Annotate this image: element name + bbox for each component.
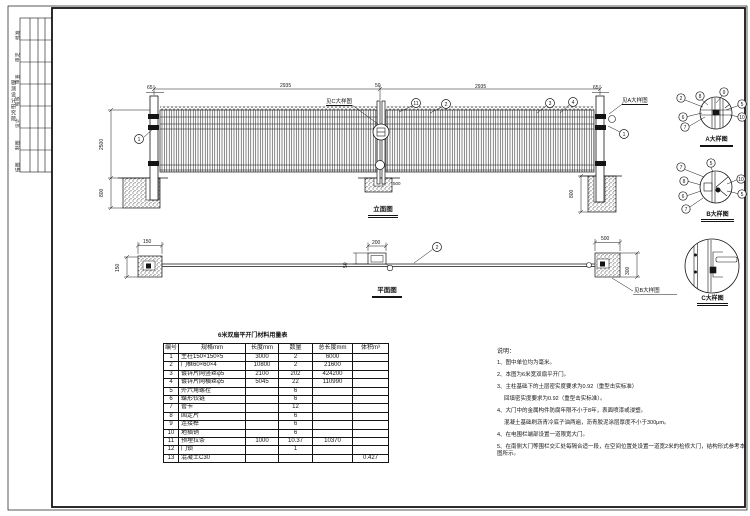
table-cell: 6 <box>279 429 313 437</box>
callout: 6 <box>679 113 687 121</box>
callout: 2 <box>442 100 451 109</box>
svg-text:8: 8 <box>699 94 702 100</box>
table-cell <box>246 429 279 437</box>
table-cell: 10800 <box>246 362 279 370</box>
svg-text:3: 3 <box>549 101 552 107</box>
detail-b-title: B大样图 <box>701 209 734 221</box>
table-cell: 6000 <box>313 354 353 362</box>
svg-text:5: 5 <box>741 102 744 108</box>
svg-text:7: 7 <box>685 207 688 213</box>
titleblock-row-label: 描图 <box>15 162 21 172</box>
titleblock-row-label: 审查 <box>15 74 21 84</box>
see-detail-a-label: 见A大样图 <box>622 96 648 106</box>
notes-block: 说明： 1、图中单位均为毫米。2、本图为6米宽双扇平开门。3、主柱基础下的土层密… <box>497 346 749 463</box>
table-row: 12门锁1 <box>164 446 389 454</box>
note-line: 3、主柱基础下的土层密实度要求为0.92（重型击实标准） <box>497 384 749 391</box>
table-cell <box>313 387 353 395</box>
table-row: 11预埋拉条100010.3710370 <box>164 438 389 446</box>
material-table-title: 6米双扇平开门材料用量表 <box>218 330 287 339</box>
detail-a <box>685 96 740 129</box>
table-cell <box>353 379 389 387</box>
table-row: 1主柱150×150×5300026000 <box>164 354 389 362</box>
table-cell: 8 <box>164 412 179 420</box>
table-cell: 2100 <box>246 370 279 378</box>
table-cell <box>353 412 389 420</box>
table-cell <box>353 362 389 370</box>
table-cell <box>246 404 279 412</box>
table-cell <box>246 446 279 454</box>
table-row: 4镀锌片网横丝φ5504522110990 <box>164 379 389 387</box>
table-cell: 1000 <box>246 438 279 446</box>
table-cell: 混凝土C30 <box>179 454 246 462</box>
table-header-cell: 总长度mm <box>313 344 353 354</box>
svg-text:6: 6 <box>682 194 685 200</box>
detail-c <box>685 239 739 293</box>
mesh-leaf-right <box>386 110 594 172</box>
table-cell <box>353 446 389 454</box>
table-cell: 202 <box>279 370 313 378</box>
callout: 10 <box>738 113 746 121</box>
notes-list: 1、图中单位均为毫米。2、本图为6米宽双扇平开门。3、主柱基础下的土层密实度要求… <box>497 360 749 458</box>
table-cell: 424200 <box>313 370 353 378</box>
drawing-sheet: 1 11 2 3 4 1 2 2 8 9 5 10 6 7 7 5 10 8 6… <box>0 0 750 516</box>
table-cell: 12 <box>164 446 179 454</box>
table-cell <box>353 404 389 412</box>
table-header-cell: 数量 <box>279 344 313 354</box>
svg-text:8: 8 <box>683 179 686 185</box>
callout: 3 <box>546 99 555 108</box>
table-cell: 地插销 <box>179 429 246 437</box>
callout: 7 <box>677 163 685 171</box>
table-header-cell: 规格mm <box>179 344 246 354</box>
titleblock-row-label: 制图 <box>15 140 21 150</box>
mesh-spikes-left <box>160 106 377 110</box>
table-cell <box>313 396 353 404</box>
table-cell: 预埋拉条 <box>179 438 246 446</box>
dim-top-left: 2935 <box>280 83 291 89</box>
table-row: 8固定片6 <box>164 412 389 420</box>
table-row: 3镀锌片网竖丝φ52100202424200 <box>164 370 389 378</box>
table-cell: 6 <box>279 412 313 420</box>
dim-plan-lock-w: 200 <box>372 240 380 246</box>
callout: 7 <box>682 205 690 213</box>
dim-gate-height: 2500 <box>99 139 105 150</box>
note-line: 混凝土基础刷沥青冷底子油两遍，沥青胶泥涂层厚度不小于300μm。 <box>504 420 749 427</box>
table-cell <box>313 429 353 437</box>
table-cell: 6 <box>279 387 313 395</box>
table-cell: 2 <box>279 354 313 362</box>
table-cell <box>353 438 389 446</box>
table-cell: 蝶形铰链 <box>179 396 246 404</box>
dim-plan-post-right-w: 500 <box>601 236 609 242</box>
table-cell: 9 <box>164 421 179 429</box>
callout: 8 <box>680 177 688 185</box>
callout: 5 <box>707 159 715 167</box>
table-cell: 镀锌片网横丝φ5 <box>179 379 246 387</box>
svg-text:7: 7 <box>680 165 683 171</box>
svg-text:9: 9 <box>723 90 726 96</box>
callout: 6 <box>679 192 687 200</box>
titleblock-row-label: 审定 <box>15 52 21 62</box>
dim-plan-post-left-w: 150 <box>143 239 151 245</box>
table-cell: 11 <box>164 438 179 446</box>
table-row: 5外六角螺栓6 <box>164 387 389 395</box>
table-cell: 12 <box>279 404 313 412</box>
table-cell: 110990 <box>313 379 353 387</box>
notes-title: 说明： <box>497 346 749 355</box>
callout: 11 <box>412 99 421 108</box>
elevation-title: 立面图 <box>368 203 398 216</box>
callout: 9 <box>720 88 728 96</box>
plan-title: 平面图 <box>372 284 402 297</box>
see-detail-c-label: 见C大样图 <box>326 97 352 107</box>
dim-post-left: 65 <box>147 85 153 91</box>
svg-text:7: 7 <box>684 125 687 131</box>
svg-text:10: 10 <box>739 115 745 121</box>
table-cell <box>353 421 389 429</box>
table-row: 7管卡12 <box>164 404 389 412</box>
material-table: 编号规格mm长度mm数量总长度mm体积m³ 1主柱150×150×5300026… <box>163 343 389 463</box>
svg-text:2: 2 <box>436 245 439 251</box>
dim-foundation-depth: 800 <box>99 189 105 197</box>
gate-post-left <box>150 96 158 200</box>
table-row: 6蝶形铰链6 <box>164 396 389 404</box>
detail-b <box>685 168 738 208</box>
table-cell: 镀锌片网竖丝φ5 <box>179 370 246 378</box>
dim-plan-post-right-d: 300 <box>625 267 631 275</box>
dim-center-foundation: 500 <box>393 181 401 186</box>
table-cell: 4 <box>164 379 179 387</box>
svg-text:1: 1 <box>138 137 141 143</box>
table-cell <box>353 429 389 437</box>
table-cell <box>313 404 353 412</box>
plan-lock <box>368 253 393 271</box>
table-cell: 5045 <box>246 379 279 387</box>
svg-text:2: 2 <box>680 96 683 102</box>
table-cell: 10370 <box>313 438 353 446</box>
table-cell: 3000 <box>246 354 279 362</box>
svg-text:6: 6 <box>682 115 685 121</box>
titleblock-grid <box>20 18 52 172</box>
table-cell <box>313 421 353 429</box>
note-line: 5、在南侧大门等围栏交汇处每隔合适一段，在空间位置处设置一道宽2米的检修大门，结… <box>497 444 749 458</box>
table-row: 13混凝土C300.427 <box>164 454 389 462</box>
callout: 1 <box>135 135 144 144</box>
table-cell <box>246 387 279 395</box>
svg-text:10: 10 <box>738 177 744 183</box>
callout: 8 <box>696 92 704 100</box>
detail-a-title: A大样图 <box>700 134 733 146</box>
svg-text:2: 2 <box>445 102 448 108</box>
note-line: 回填密实度要求为0.92（重型击实标准）。 <box>504 396 749 403</box>
table-cell: 管卡 <box>179 404 246 412</box>
material-table-body: 1主柱150×150×53000260002门框60×60×4108002216… <box>164 354 389 463</box>
titleblock-row-label: 批准 <box>15 30 21 40</box>
table-cell: 连接榫 <box>179 421 246 429</box>
callout: 10 <box>737 175 745 183</box>
dim-foundation-depth-right: 800 <box>569 190 575 198</box>
svg-text:1: 1 <box>623 132 626 138</box>
table-cell <box>353 354 389 362</box>
table-header-cell: 长度mm <box>246 344 279 354</box>
table-cell: 13 <box>164 454 179 462</box>
table-cell <box>246 396 279 404</box>
callout: 4 <box>569 98 578 107</box>
table-cell: 1 <box>164 354 179 362</box>
table-cell: 3 <box>164 370 179 378</box>
table-cell <box>246 454 279 462</box>
table-cell: 6 <box>279 421 313 429</box>
table-cell: 0.427 <box>353 454 389 462</box>
table-cell: 6 <box>279 396 313 404</box>
callout: 5 <box>738 190 746 198</box>
table-cell <box>353 370 389 378</box>
dim-center-gap: 50 <box>375 83 381 89</box>
table-cell <box>279 454 313 462</box>
table-cell: 1 <box>279 446 313 454</box>
callout: 1 <box>620 130 629 139</box>
table-cell <box>353 387 389 395</box>
table-cell <box>313 454 353 462</box>
dim-plan-post-left-d: 150 <box>115 264 121 272</box>
titleblock-row-label: 设计 <box>15 118 21 128</box>
note-line: 4、大门中的金属构件防腐年限不小于8年，表面喷漆或浸塑。 <box>497 408 749 415</box>
table-header-cell: 编号 <box>164 344 179 354</box>
table-cell <box>246 421 279 429</box>
table-cell <box>313 446 353 454</box>
callout: 2 <box>677 94 685 102</box>
callout: 5 <box>738 100 746 108</box>
table-cell: 外六角螺栓 <box>179 387 246 395</box>
dim-post-right: 65 <box>593 85 599 91</box>
table-cell: 5 <box>164 387 179 395</box>
table-cell: 6 <box>164 396 179 404</box>
table-cell <box>353 396 389 404</box>
note-line: 1、图中单位均为毫米。 <box>497 360 749 367</box>
table-cell: 10.37 <box>279 438 313 446</box>
table-row: 9连接榫6 <box>164 421 389 429</box>
plan-gate-line <box>162 264 595 267</box>
table-cell: 2 <box>164 362 179 370</box>
table-cell <box>313 412 353 420</box>
table-cell: 门锁 <box>179 446 246 454</box>
table-cell: 2 <box>279 362 313 370</box>
svg-text:4: 4 <box>572 100 575 106</box>
table-cell: 主柱150×150×5 <box>179 354 246 362</box>
table-row: 10地插销6 <box>164 429 389 437</box>
callout: 7 <box>681 123 689 131</box>
table-cell: 7 <box>164 404 179 412</box>
dim-top-right: 2935 <box>475 84 486 90</box>
svg-text:5: 5 <box>741 192 744 198</box>
table-cell: 门框60×60×4 <box>179 362 246 370</box>
note-line: 2、本图为6米宽双扇平开门。 <box>497 372 749 379</box>
gate-post-right <box>596 96 604 202</box>
callout: 2 <box>433 243 442 252</box>
titleblock-row-label: 校核 <box>15 96 21 106</box>
note-line: 4、在电围栏端部设置一道限宽大门。 <box>497 432 749 439</box>
material-table-header: 编号规格mm长度mm数量总长度mm体积m³ <box>164 344 389 354</box>
see-detail-b-label: 见B大样图 <box>634 286 660 295</box>
dim-plan-lock-d: 50 <box>343 262 349 268</box>
table-header-cell: 体积m³ <box>353 344 389 354</box>
svg-text:11: 11 <box>413 101 418 107</box>
table-cell <box>246 412 279 420</box>
detail-c-title: C大样图 <box>697 293 728 305</box>
table-cell: 10 <box>164 429 179 437</box>
table-row: 2门框60×60×410800221600 <box>164 362 389 370</box>
mesh-leaf-left <box>160 110 377 172</box>
table-cell: 固定片 <box>179 412 246 420</box>
table-cell: 21600 <box>313 362 353 370</box>
table-cell: 22 <box>279 379 313 387</box>
svg-text:5: 5 <box>710 161 713 167</box>
